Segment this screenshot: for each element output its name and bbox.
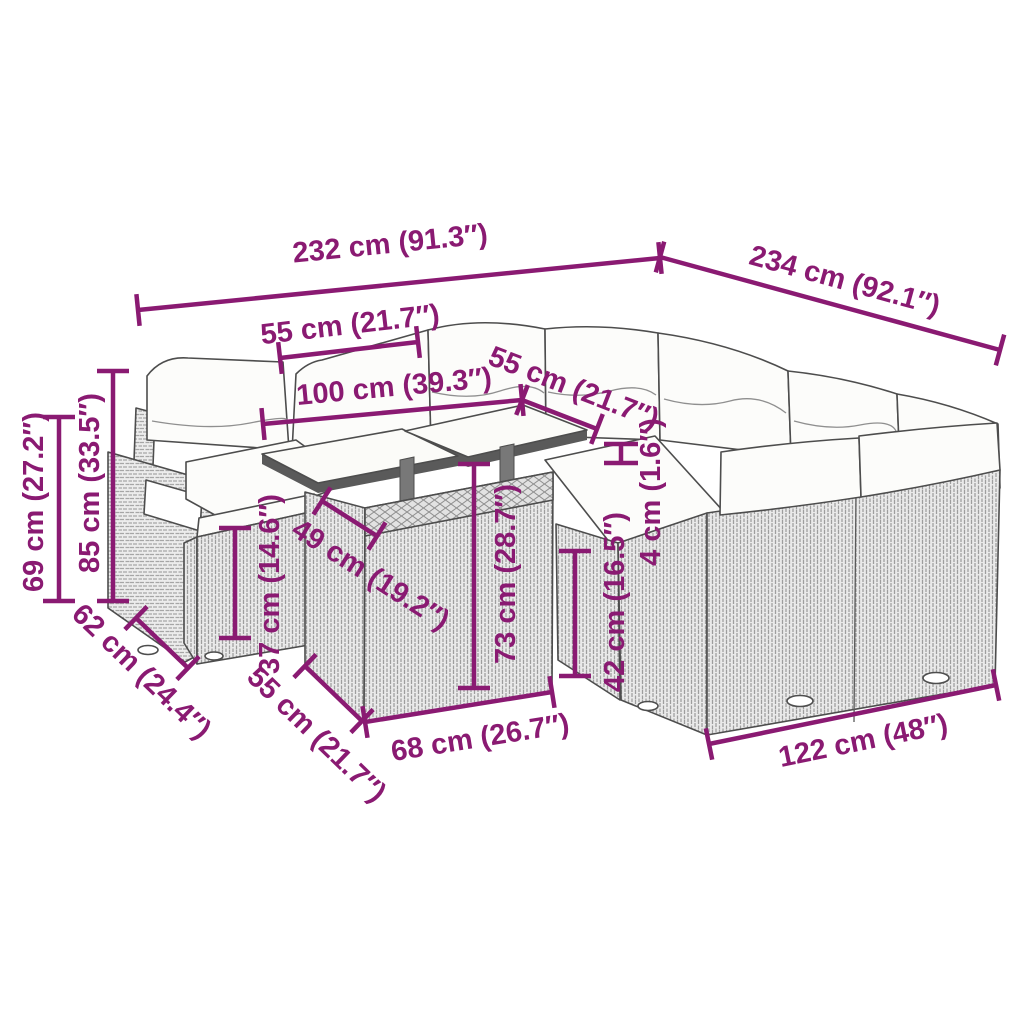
back-cushion-4 xyxy=(658,333,791,456)
dim-label-73: 73 cm (28.7″) xyxy=(490,484,522,664)
dim-label-68: 68 cm (26.7″) xyxy=(389,708,572,768)
sofa-side-foot xyxy=(638,702,658,711)
dim-label-85: 85 cm (33.5″) xyxy=(74,393,106,573)
armchair-back-cushion xyxy=(147,358,289,450)
dim-label-37: 37 cm (14.6″) xyxy=(254,494,286,674)
dim-label-42: 42 cm (16.5″) xyxy=(599,512,631,692)
footstool-foot xyxy=(205,652,223,660)
sofa-front-foot-left xyxy=(787,696,813,707)
dim-label-232: 232 cm (91.3″) xyxy=(291,218,489,269)
dim-label-4: 4 cm (1.6″) xyxy=(635,418,667,566)
sofa-front-foot-right xyxy=(923,673,949,684)
dim-label-234: 234 cm (92.1″) xyxy=(746,240,944,323)
product-dimension-diagram: 232 cm (91.3″) 234 cm (92.1″) 55 cm (21.… xyxy=(0,0,1024,1024)
dim-armrest-height: 69 cm (27.2″) xyxy=(18,412,75,601)
diagram-canvas: 232 cm (91.3″) 234 cm (92.1″) 55 cm (21.… xyxy=(0,0,1024,1024)
dim-label-69: 69 cm (27.2″) xyxy=(18,412,50,592)
footstool-left-face xyxy=(184,537,197,664)
